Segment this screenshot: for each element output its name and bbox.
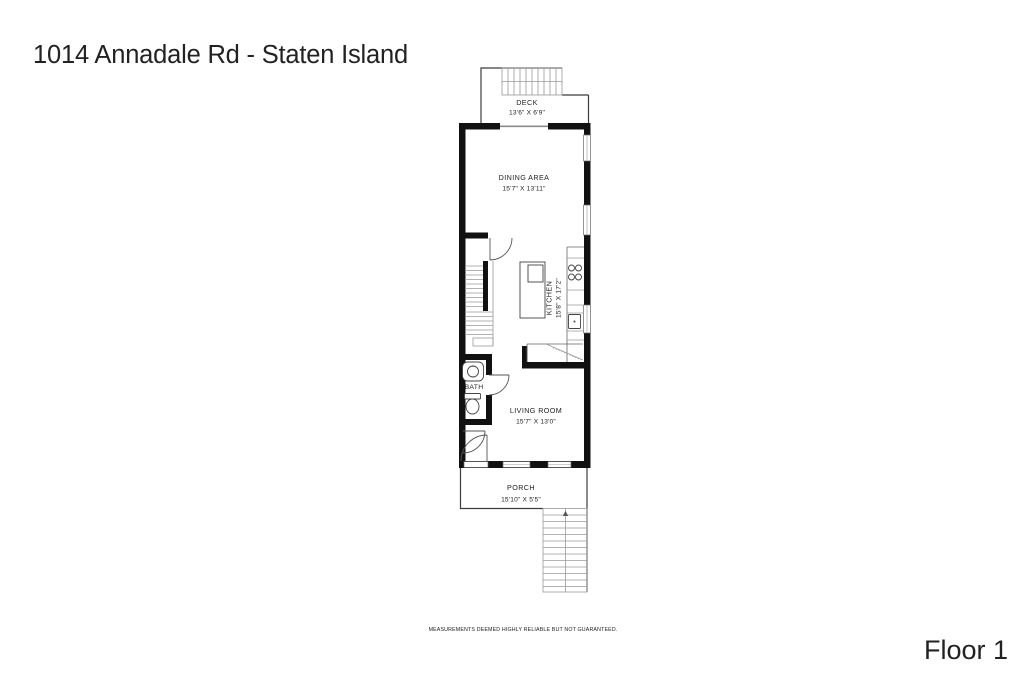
window <box>548 462 571 468</box>
wall-stub-dining <box>459 233 488 239</box>
floorplan-canvas: 1014 Annadale Rd - Staten Island Floor 1… <box>0 0 1024 681</box>
front-door-opening <box>464 462 488 468</box>
porch-dims: 15'10" X 5'5" <box>501 497 541 504</box>
wall-right <box>584 123 591 468</box>
wall-bath-partition-lower <box>486 395 492 425</box>
island-sink <box>528 265 543 282</box>
kitchen-dims: 15'8" X 17'2" <box>556 278 563 318</box>
wall-top-left <box>459 123 500 130</box>
window <box>584 205 591 235</box>
porch-label: PORCH <box>507 483 535 492</box>
deck-label: DECK <box>516 98 538 107</box>
dining-dims: 15'7" X 13'11" <box>502 186 546 193</box>
porch-stairs <box>543 509 587 593</box>
deck-dims: 13'6" X 6'9" <box>509 110 545 117</box>
wall-top-right <box>548 123 591 130</box>
stair-direction-arrow <box>563 511 568 516</box>
door-closet <box>463 431 485 453</box>
deck-area: DECK 13'6" X 6'9" <box>481 68 589 123</box>
kitchen-label: KITCHEN <box>545 281 554 315</box>
door-dining-kitchen <box>490 238 512 260</box>
page-title: 1014 Annadale Rd - Staten Island <box>33 41 408 69</box>
stair-treads-lower <box>465 312 493 335</box>
wall-stair <box>483 261 488 311</box>
stair-treads-upper <box>465 266 483 307</box>
stair-landing <box>473 338 493 346</box>
wall-kitchen-divider <box>522 362 591 369</box>
corner-counter <box>527 344 583 362</box>
wall-bath-partition-upper <box>486 354 492 375</box>
window <box>503 462 530 468</box>
porch-stair-treads <box>543 509 587 593</box>
living-dims: 15'7" X 13'0" <box>516 419 556 426</box>
door-bath <box>489 375 509 395</box>
toilet <box>465 394 481 415</box>
wall-left <box>459 123 466 468</box>
bath-label: BATH <box>465 384 484 391</box>
porch-area: PORCH 15'10" X 5'5" <box>461 468 588 592</box>
dining-label: DINING AREA <box>499 173 550 182</box>
window <box>584 305 591 333</box>
bath-sink <box>463 362 484 381</box>
interior-stairs <box>465 261 493 346</box>
deck-stair-treads <box>502 68 562 95</box>
living-label: LIVING ROOM <box>510 406 562 415</box>
floor-label: Floor 1 <box>924 635 1008 665</box>
kitchen-counter <box>567 247 584 362</box>
window <box>584 135 591 161</box>
kitchen-sink <box>569 315 581 329</box>
bath-fixtures: BATH <box>463 362 484 414</box>
stove <box>569 265 582 280</box>
disclaimer-text: MEASUREMENTS DEEMED HIGHLY RELIABLE BUT … <box>429 627 618 633</box>
